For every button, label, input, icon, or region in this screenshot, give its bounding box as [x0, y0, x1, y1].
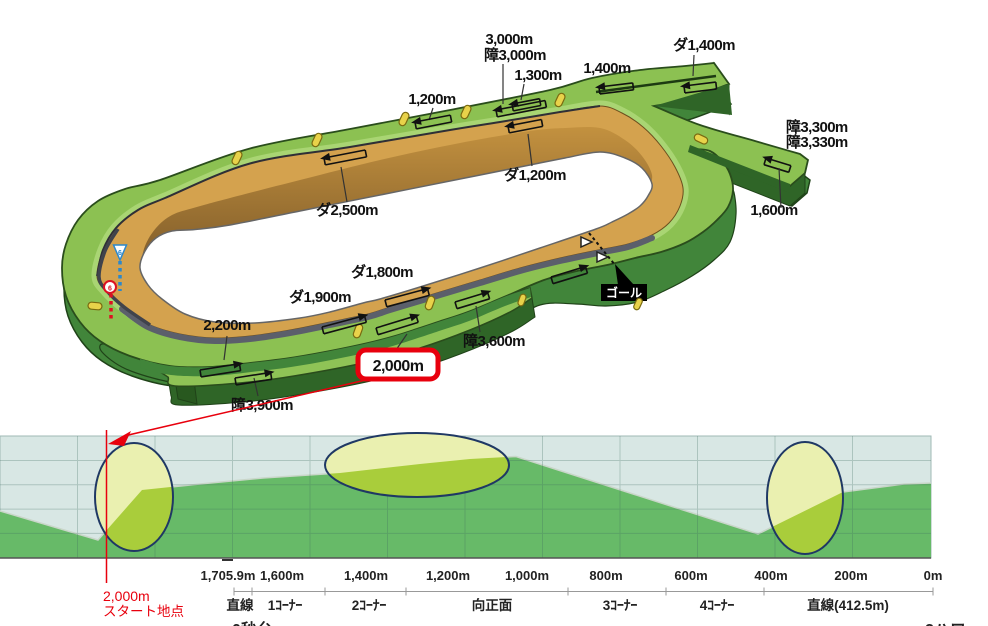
- svg-text:直線: 直線: [227, 597, 254, 613]
- svg-text:1ｺｰﾅｰ: 1ｺｰﾅｰ: [268, 598, 303, 613]
- svg-text:ダ1,800m: ダ1,800m: [351, 263, 413, 281]
- svg-text:2ｺｰﾅｰ: 2ｺｰﾅｰ: [352, 598, 387, 613]
- svg-text:直線(412.5m): 直線(412.5m): [807, 597, 889, 613]
- svg-text:ダ1,900m: ダ1,900m: [289, 288, 351, 306]
- svg-text:3ｺｰﾅｰ: 3ｺｰﾅｰ: [603, 598, 638, 613]
- svg-text:6: 6: [118, 250, 122, 257]
- svg-text:1,705.9m: 1,705.9m: [201, 568, 256, 583]
- svg-text:1,200m: 1,200m: [426, 568, 470, 583]
- svg-text:1,300m: 1,300m: [514, 67, 562, 84]
- svg-text:1,600m: 1,600m: [260, 568, 304, 583]
- svg-text:1,400m: 1,400m: [344, 568, 388, 583]
- svg-text:200m: 200m: [834, 568, 867, 583]
- svg-text:1,000m: 1,000m: [505, 568, 549, 583]
- svg-text:スタート地点: スタート地点: [103, 604, 184, 619]
- svg-text:4ｺｰﾅｰ: 4ｺｰﾅｰ: [700, 598, 735, 613]
- svg-text:800m: 800m: [589, 568, 622, 583]
- svg-text:600m: 600m: [674, 568, 707, 583]
- svg-text:障3,600m: 障3,600m: [463, 332, 525, 350]
- svg-text:ダ2,500m: ダ2,500m: [316, 201, 378, 219]
- svg-text:2,000m: 2,000m: [373, 358, 424, 375]
- svg-text:1,200m: 1,200m: [408, 91, 456, 108]
- svg-text:2,000m: 2,000m: [103, 588, 150, 604]
- svg-text:障3,330m: 障3,330m: [786, 133, 848, 151]
- svg-text:向正面: 向正面: [472, 597, 513, 613]
- svg-text:2,200m: 2,200m: [203, 317, 251, 334]
- svg-text:3,000m: 3,000m: [485, 31, 533, 48]
- svg-text:1,600m: 1,600m: [750, 202, 798, 219]
- svg-text:ダ1,400m: ダ1,400m: [673, 36, 735, 54]
- svg-text:ダ1,200m: ダ1,200m: [504, 166, 566, 184]
- svg-text:2ハロ: 2ハロ: [925, 622, 966, 626]
- svg-text:6: 6: [108, 286, 112, 293]
- svg-text:400m: 400m: [754, 568, 787, 583]
- svg-text:1,400m: 1,400m: [583, 60, 631, 77]
- svg-text:ゴール: ゴール: [606, 285, 642, 300]
- svg-text:障3,000m: 障3,000m: [484, 46, 546, 64]
- svg-text:0m: 0m: [924, 568, 943, 583]
